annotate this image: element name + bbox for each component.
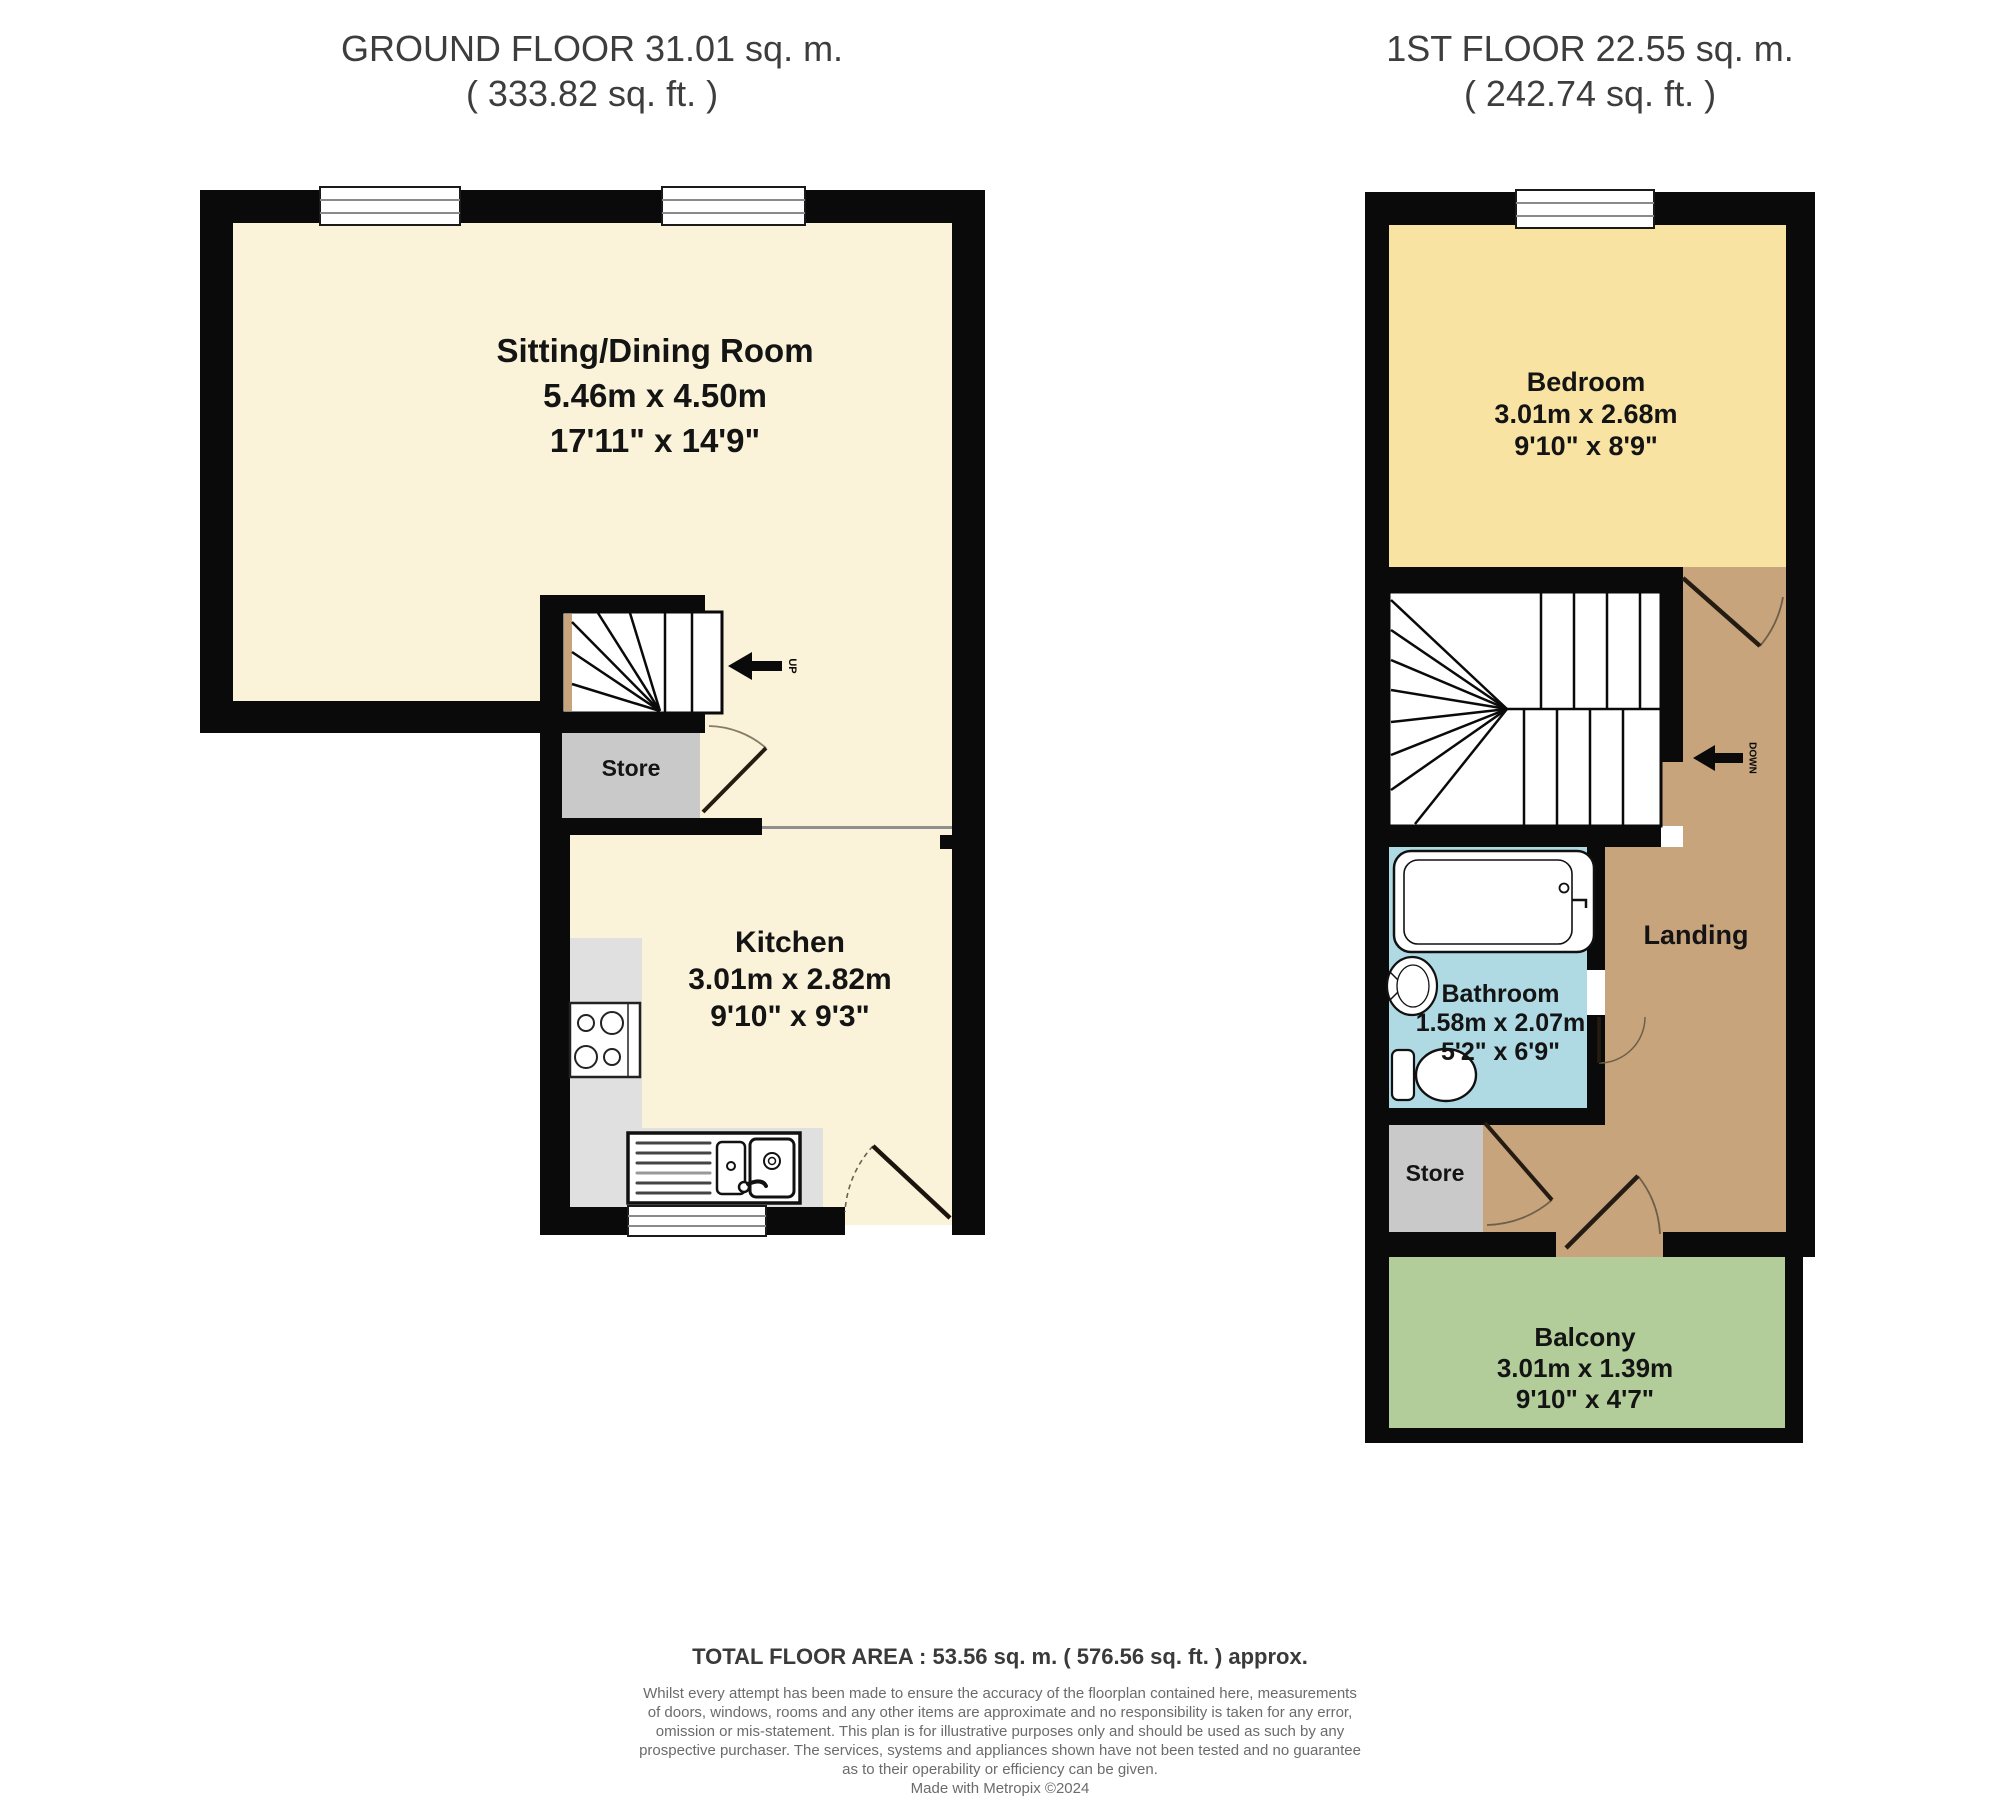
landing-label: Landing — [1596, 920, 1796, 951]
disclaimer-line-5: as to their operability or efficiency ca… — [550, 1760, 1450, 1779]
bathroom-metric: 1.58m x 2.07m — [1398, 1009, 1603, 1038]
store-ground-label: Store — [562, 755, 700, 782]
disclaimer-line-4: prospective purchaser. The services, sys… — [550, 1741, 1450, 1760]
bathroom-imperial: 5'2" x 6'9" — [1398, 1038, 1603, 1067]
kitchen-imperial: 9'10" x 9'3" — [640, 998, 940, 1035]
bedroom-door — [1683, 578, 1783, 646]
disclaimer-line-1: Whilst every attempt has been made to en… — [550, 1684, 1450, 1703]
up-arrow-label: UP — [786, 658, 798, 673]
window-bedroom — [1516, 190, 1654, 228]
balcony-door — [1566, 1176, 1660, 1248]
balcony-imperial: 9'10" x 4'7" — [1435, 1384, 1735, 1415]
bathroom-door — [1599, 1017, 1645, 1063]
kitchen-label: Kitchen 3.01m x 2.82m 9'10" x 9'3" — [640, 924, 940, 1035]
balcony-metric: 3.01m x 1.39m — [1435, 1353, 1735, 1384]
hob-icon — [570, 1003, 640, 1077]
stairs-first-floor — [1389, 592, 1661, 826]
window-kitchen — [628, 1206, 766, 1236]
bedroom-metric: 3.01m x 2.68m — [1436, 398, 1736, 430]
store-first-label: Store — [1385, 1160, 1485, 1187]
down-arrow-icon: DOWN — [1693, 742, 1757, 774]
store-door-first — [1485, 1123, 1552, 1225]
balcony-name: Balcony — [1435, 1322, 1735, 1353]
floorplan-canvas: GROUND FLOOR 31.01 sq. m. ( 333.82 sq. f… — [0, 0, 2000, 1804]
sitting-room-label: Sitting/Dining Room 5.46m x 4.50m 17'11"… — [405, 328, 905, 463]
total-floor-area: TOTAL FLOOR AREA : 53.56 sq. m. ( 576.56… — [550, 1644, 1450, 1670]
stair-handrail-strip — [564, 614, 572, 711]
down-arrow-label: DOWN — [1746, 742, 1757, 774]
disclaimer-line-2: of doors, windows, rooms and any other i… — [550, 1703, 1450, 1722]
bedroom-name: Bedroom — [1436, 366, 1736, 398]
metropix-credit: Made with Metropix ©2024 — [550, 1779, 1450, 1798]
bathroom-label: Bathroom 1.58m x 2.07m 5'2" x 6'9" — [1398, 980, 1603, 1067]
sink-icon — [628, 1133, 800, 1203]
disclaimer-line-3: omission or mis-statement. This plan is … — [550, 1722, 1450, 1741]
footer: TOTAL FLOOR AREA : 53.56 sq. m. ( 576.56… — [550, 1644, 1450, 1798]
bathroom-name: Bathroom — [1398, 980, 1603, 1009]
stairs-ground-floor — [562, 612, 722, 713]
kitchen-metric: 3.01m x 2.82m — [640, 961, 940, 998]
floorplan-vector-layer: UP — [0, 0, 2000, 1804]
bedroom-imperial: 9'10" x 8'9" — [1436, 430, 1736, 462]
store-door-ground — [703, 726, 766, 812]
window-sitting-left — [320, 187, 460, 225]
sitting-room-imperial: 17'11" x 14'9" — [405, 418, 905, 463]
window-sitting-right — [662, 187, 805, 225]
kitchen-entry-door — [845, 1146, 950, 1218]
kitchen-name: Kitchen — [640, 924, 940, 961]
bathtub-icon — [1394, 851, 1594, 952]
sitting-room-name: Sitting/Dining Room — [405, 328, 905, 373]
bedroom-label: Bedroom 3.01m x 2.68m 9'10" x 8'9" — [1436, 366, 1736, 462]
sitting-room-metric: 5.46m x 4.50m — [405, 373, 905, 418]
up-arrow-icon: UP — [728, 652, 798, 680]
balcony-label: Balcony 3.01m x 1.39m 9'10" x 4'7" — [1435, 1322, 1735, 1415]
